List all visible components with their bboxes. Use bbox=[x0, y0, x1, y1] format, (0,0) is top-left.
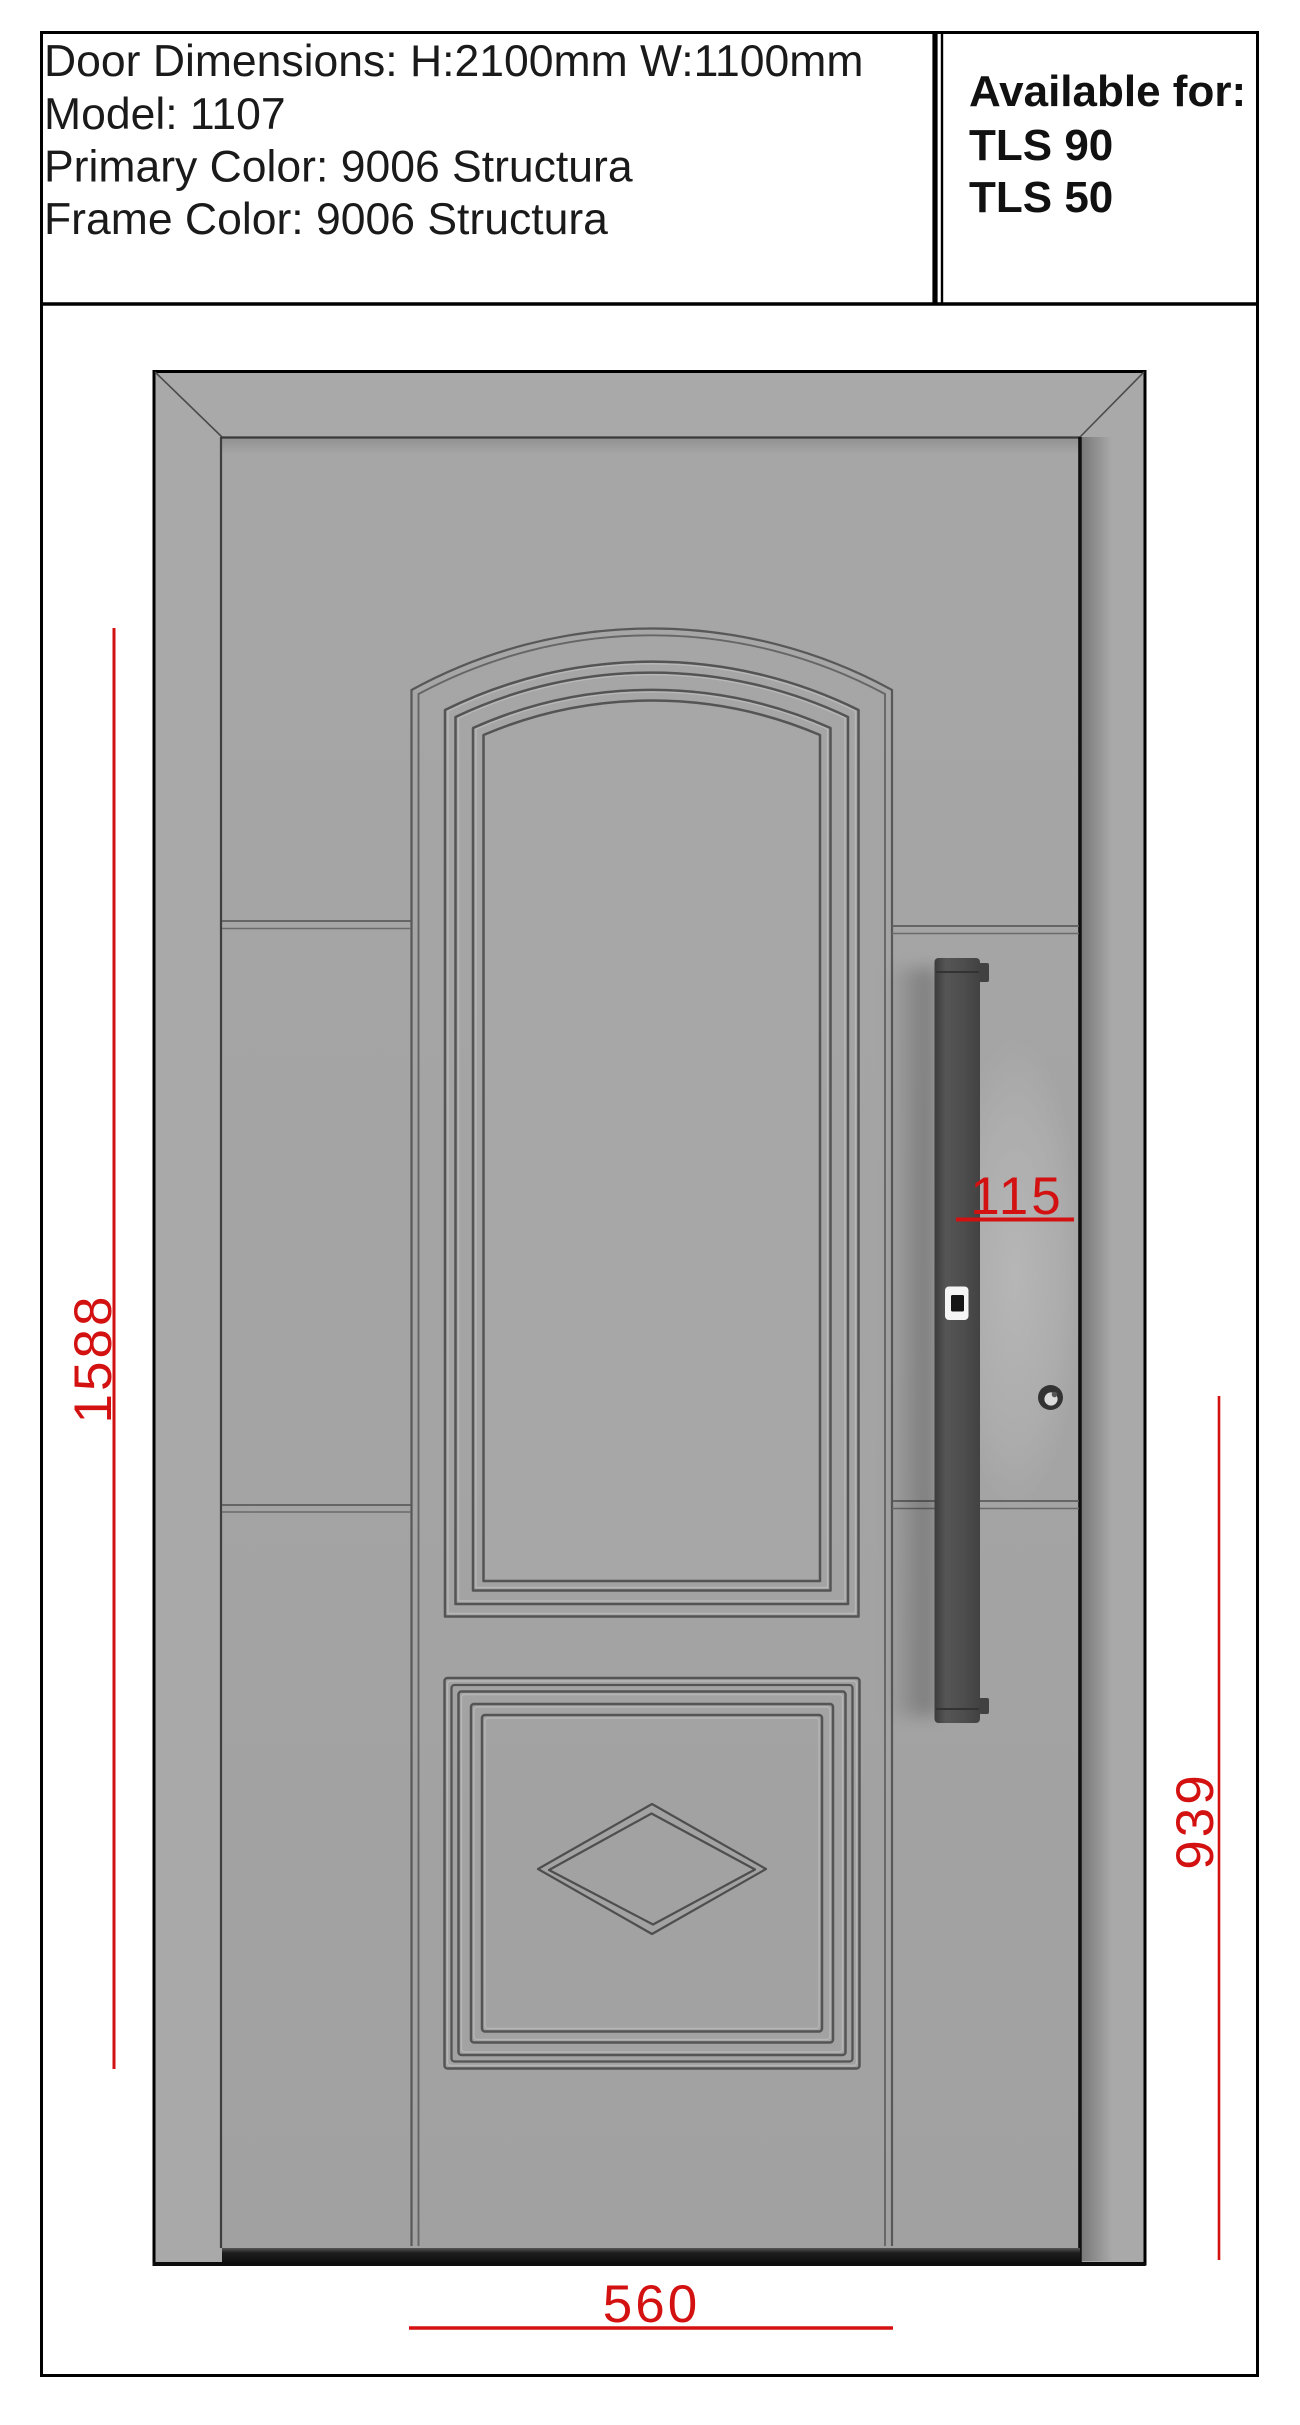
svg-text:115: 115 bbox=[970, 1167, 1064, 1226]
svg-text:Available for:: Available for: bbox=[969, 67, 1246, 116]
svg-text:Door Dimensions: H:2100mm W:11: Door Dimensions: H:2100mm W:1100mm bbox=[44, 37, 863, 86]
svg-text:1588: 1588 bbox=[64, 1294, 123, 1424]
svg-text:TLS 90: TLS 90 bbox=[969, 121, 1113, 170]
svg-text:939: 939 bbox=[1166, 1772, 1225, 1869]
svg-text:Frame Color: 9006 Structura: Frame Color: 9006 Structura bbox=[44, 195, 608, 244]
svg-text:560: 560 bbox=[603, 2275, 700, 2334]
svg-text:TLS 50: TLS 50 bbox=[969, 173, 1113, 222]
svg-text:Model: 1107: Model: 1107 bbox=[44, 90, 286, 139]
svg-text:Primary Color: 9006 Structura: Primary Color: 9006 Structura bbox=[44, 143, 633, 192]
